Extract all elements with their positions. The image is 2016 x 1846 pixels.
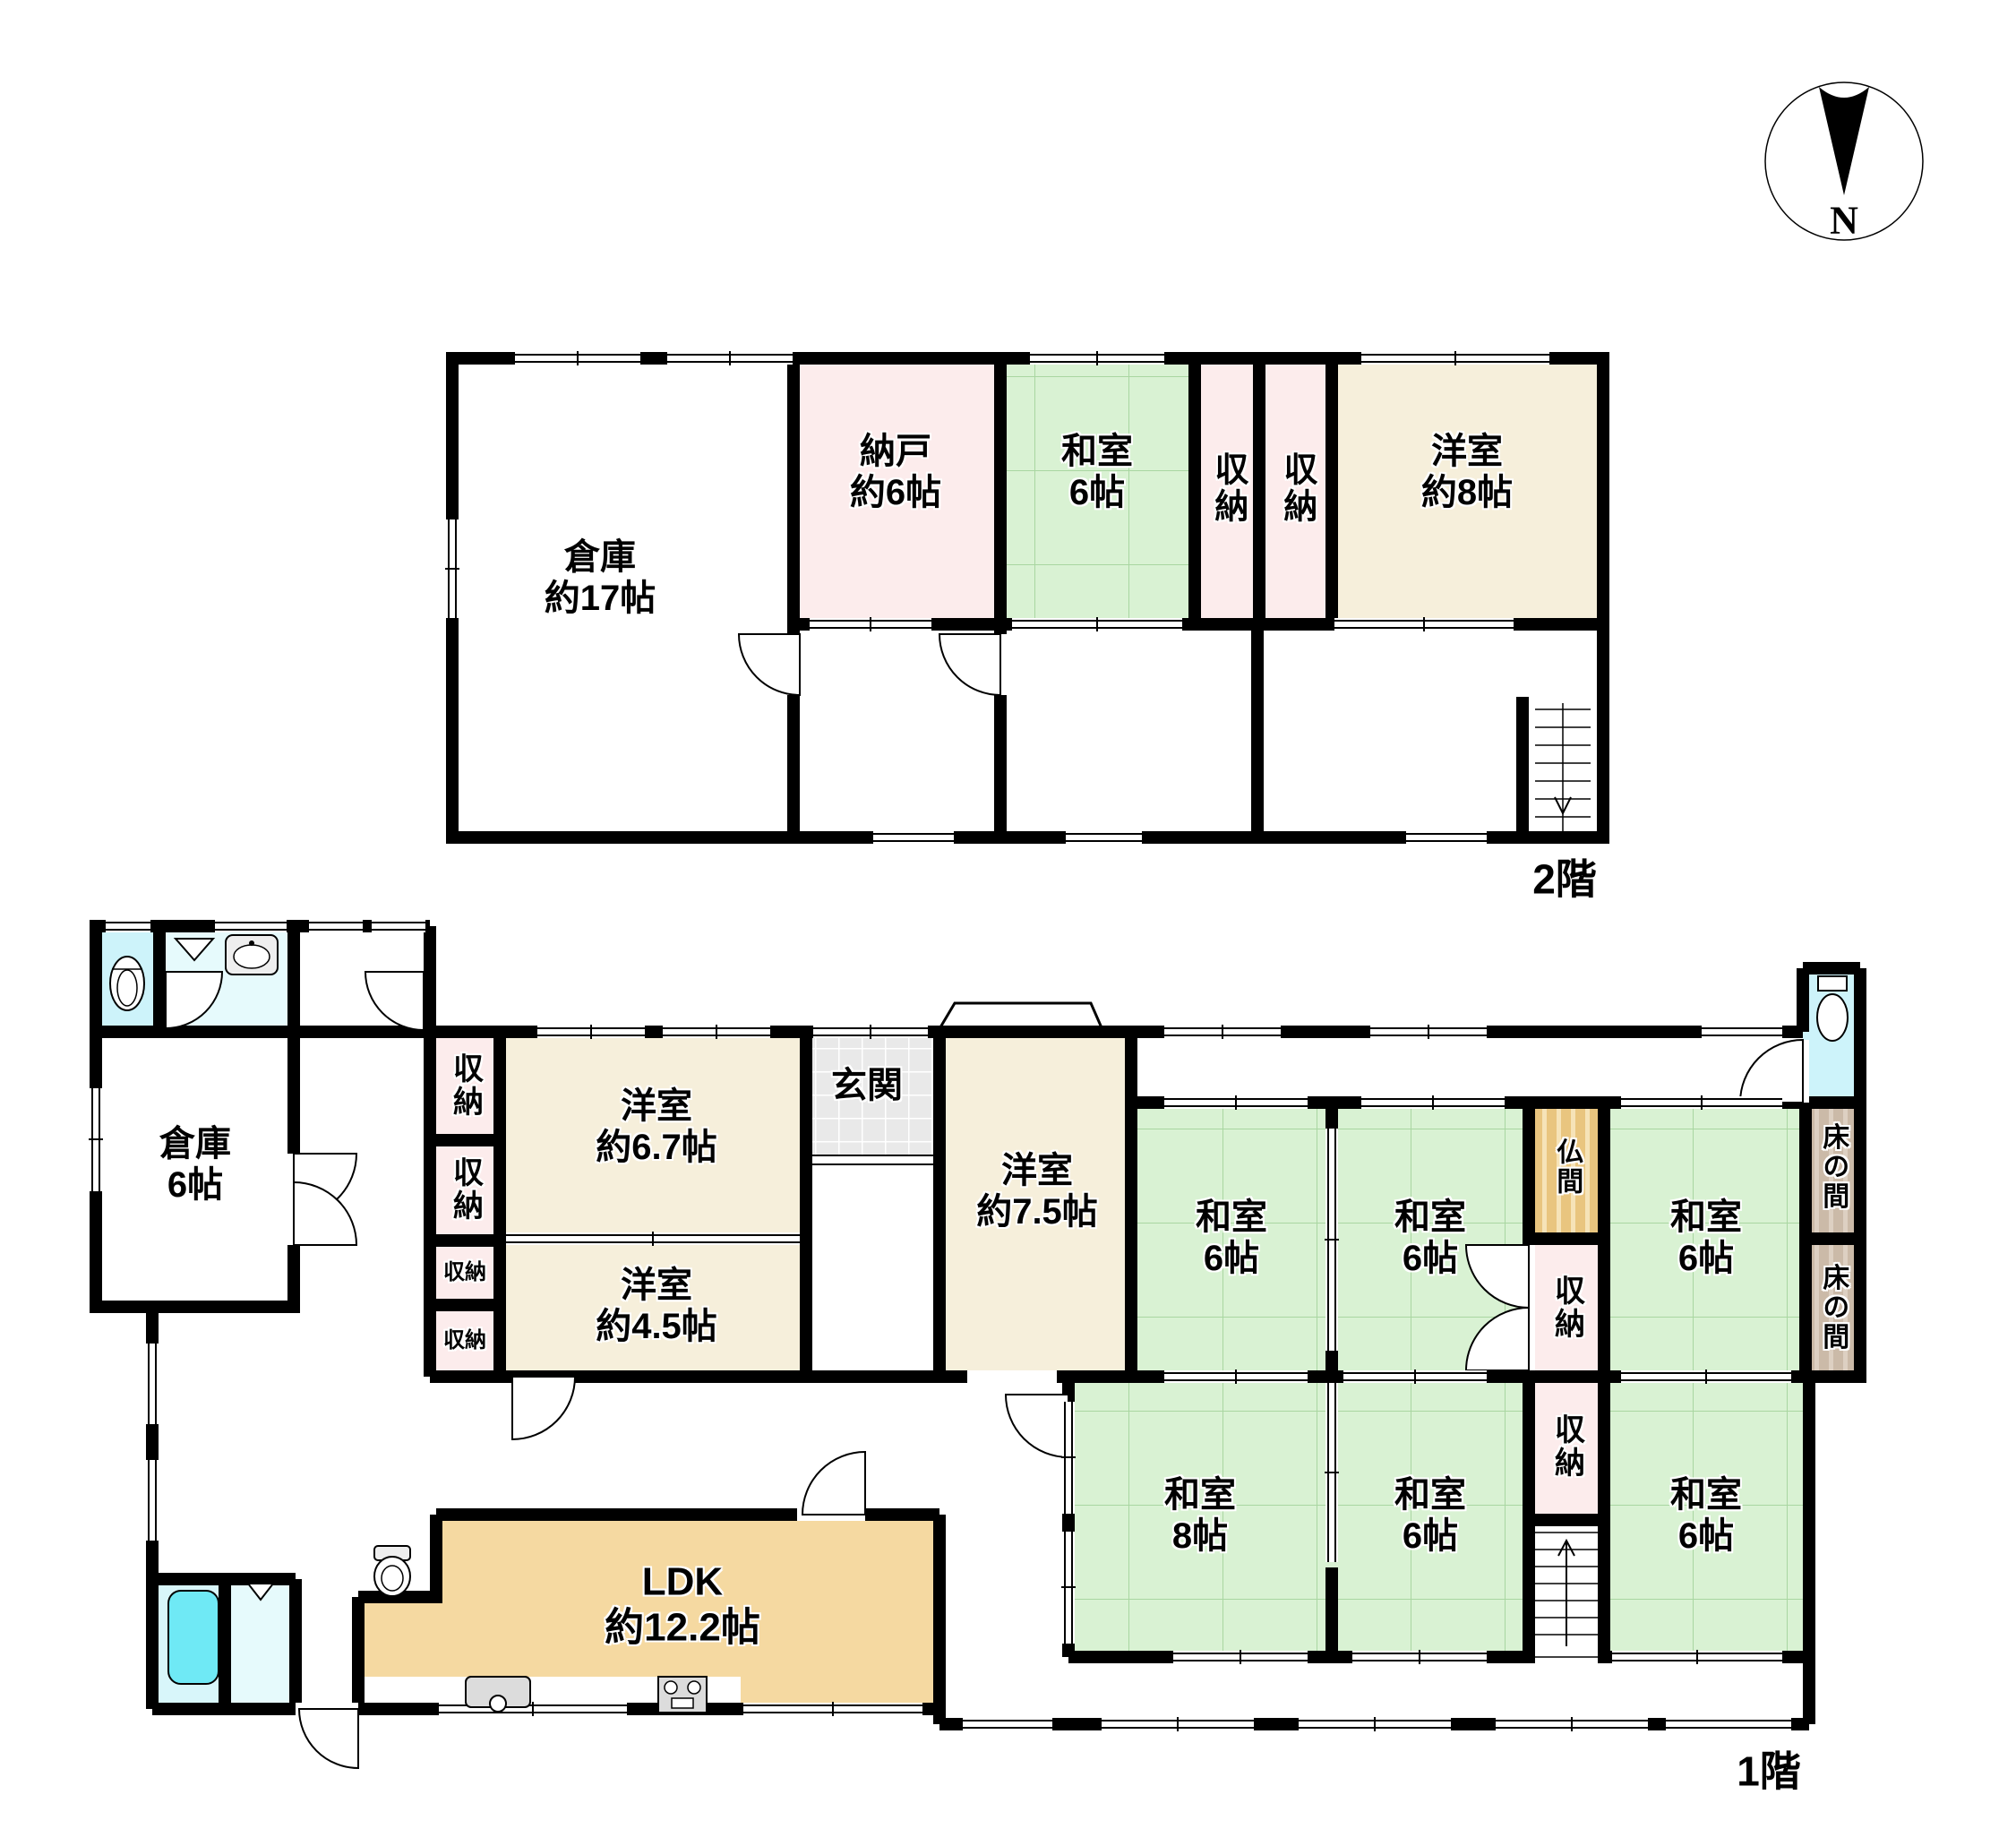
room-name: 和室 bbox=[1394, 1198, 1466, 1237]
room-label-f1-ldk: LDK 約12.2帖 bbox=[605, 1559, 760, 1650]
room-area: 約4.5帖 bbox=[596, 1306, 717, 1347]
room-name: 和室 bbox=[1394, 1475, 1466, 1515]
room-name: 洋室 bbox=[1001, 1151, 1073, 1190]
room-label-f2-shuno-b: 収納 bbox=[1276, 451, 1316, 525]
room-label-f1-washitsu-e: 和室 6帖 bbox=[1670, 1474, 1742, 1557]
f2-stairs bbox=[1535, 703, 1591, 831]
room-label-f1-yoshitsu67: 洋室 約6.7帖 bbox=[596, 1086, 717, 1168]
toilet-topright-icon bbox=[1817, 976, 1848, 1041]
room-area: 約6帖 bbox=[850, 472, 941, 513]
room-area: 約17帖 bbox=[545, 578, 656, 619]
room-label-f1-washitsu-8: 和室 8帖 bbox=[1164, 1474, 1236, 1557]
floorplan-canvas: 倉庫 約17帖 納戸 約6帖 和室 6帖 収納 収納 洋室 約8帖 2階 倉庫 … bbox=[0, 0, 2016, 1846]
room-area: 6帖 bbox=[1670, 1515, 1742, 1557]
room-label-f1-washitsu-d: 和室 6帖 bbox=[1394, 1474, 1466, 1557]
floor1-plan bbox=[89, 920, 1866, 1768]
room-label-f2-yoshitsu8: 洋室 約8帖 bbox=[1421, 431, 1513, 513]
genkan-step bbox=[802, 1155, 933, 1164]
room-name: 和室 bbox=[1670, 1475, 1742, 1515]
room-label-f2-shuno-a: 収納 bbox=[1207, 451, 1247, 525]
room-area: 6帖 bbox=[1394, 1238, 1466, 1279]
toilet-topleft-icon bbox=[110, 957, 144, 1010]
room-area: 6帖 bbox=[1061, 472, 1133, 513]
room-label-f1-tokonoma-b: 床の間 bbox=[1817, 1264, 1849, 1352]
room-area: 約12.2帖 bbox=[605, 1605, 760, 1651]
room-label-f1-shuno2: 収納 bbox=[447, 1156, 482, 1223]
room-name: 倉庫 bbox=[159, 1124, 231, 1163]
room-name: 洋室 bbox=[1431, 432, 1503, 471]
room-label-f1-washitsu-c: 和室 6帖 bbox=[1670, 1197, 1742, 1279]
room-label-f1-shuno5: 収納 bbox=[1548, 1275, 1583, 1341]
room-area: 約6.7帖 bbox=[596, 1127, 717, 1168]
room-area: 6帖 bbox=[1670, 1238, 1742, 1279]
room-name: 和室 bbox=[1670, 1198, 1742, 1237]
kitchen-sink-icon bbox=[466, 1677, 530, 1712]
kitchen-stove-icon bbox=[658, 1677, 707, 1713]
room-label-f2-washitsu: 和室 6帖 bbox=[1061, 431, 1133, 513]
room-label-f1-yoshitsu45: 洋室 約4.5帖 bbox=[596, 1265, 717, 1347]
room-name: LDK bbox=[642, 1559, 723, 1603]
room-name: 洋室 bbox=[621, 1086, 692, 1126]
room-area: 約7.5帖 bbox=[976, 1191, 1098, 1232]
room-name: 和室 bbox=[1164, 1475, 1236, 1515]
room-label-f1-souko: 倉庫 6帖 bbox=[159, 1123, 231, 1206]
sink-topleft-icon bbox=[226, 935, 278, 975]
room-name: 和室 bbox=[1061, 432, 1133, 471]
room-label-f1-butsuma: 仏間 bbox=[1551, 1138, 1583, 1197]
room-area: 約8帖 bbox=[1421, 472, 1513, 513]
room-label-f1-yoshitsu75: 洋室 約7.5帖 bbox=[976, 1150, 1098, 1232]
floor1-label: 1階 bbox=[1737, 1748, 1801, 1796]
room-label-f1-tokonoma-a: 床の間 bbox=[1817, 1123, 1849, 1212]
compass-north-label: N bbox=[1830, 199, 1858, 245]
room-name: 洋室 bbox=[621, 1266, 692, 1305]
room-label-f1-washitsu-b: 和室 6帖 bbox=[1394, 1197, 1466, 1279]
room-area: 6帖 bbox=[159, 1164, 231, 1206]
bathtub-icon bbox=[168, 1591, 219, 1684]
room-label-f2-souko: 倉庫 約17帖 bbox=[545, 537, 656, 619]
stairs-up-arrow-icon bbox=[1558, 1541, 1574, 1646]
room-area: 6帖 bbox=[1196, 1238, 1267, 1279]
room-label-f1-genkan: 玄関 bbox=[831, 1065, 903, 1106]
floorplan-drawing bbox=[0, 0, 2016, 1846]
room-label-f1-shuno4: 収納 bbox=[443, 1328, 486, 1353]
f1-stairs bbox=[1535, 1533, 1598, 1646]
room-label-f1-shuno6: 収納 bbox=[1548, 1413, 1583, 1480]
room-name: 収納 bbox=[1209, 451, 1247, 525]
room-area: 6帖 bbox=[1394, 1515, 1466, 1557]
floor2-label: 2階 bbox=[1532, 856, 1597, 904]
room-name: 納戸 bbox=[860, 432, 931, 471]
room-area: 8帖 bbox=[1164, 1515, 1236, 1557]
f2-doors bbox=[739, 634, 1007, 695]
room-label-f1-shuno1: 収納 bbox=[447, 1052, 482, 1119]
room-name: 倉庫 bbox=[564, 537, 636, 577]
room-name: 和室 bbox=[1196, 1198, 1267, 1237]
room-label-f1-shuno3: 収納 bbox=[443, 1260, 486, 1285]
room-label-f2-nando: 納戸 約6帖 bbox=[850, 431, 941, 513]
room-label-f1-washitsu-a: 和室 6帖 bbox=[1196, 1197, 1267, 1279]
room-name: 収納 bbox=[1278, 451, 1316, 525]
toilet-hall-icon bbox=[374, 1546, 410, 1596]
